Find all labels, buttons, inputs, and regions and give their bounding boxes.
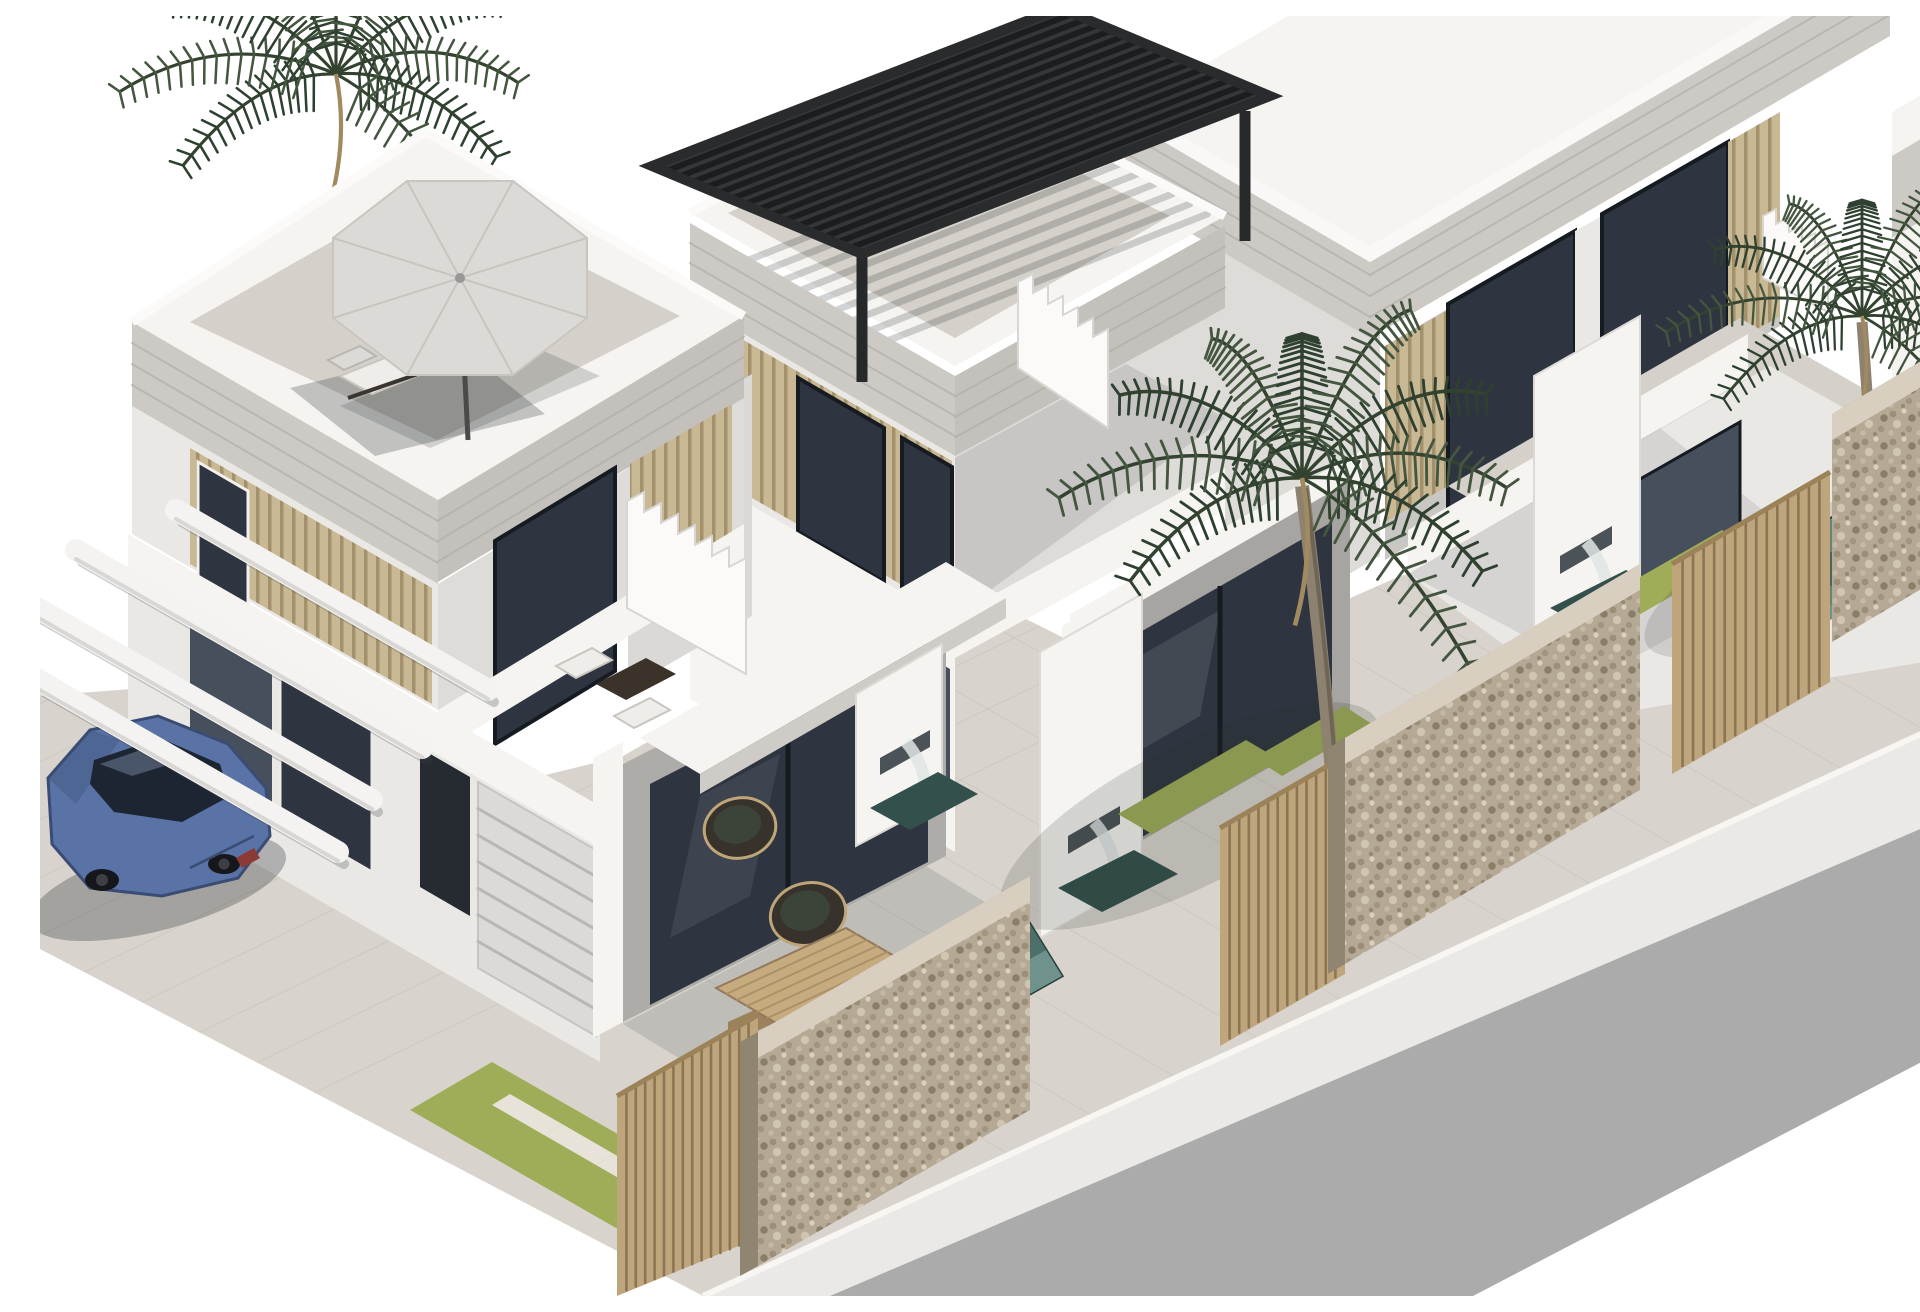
corner-pilaster [593,742,623,1038]
car-rim [219,859,230,870]
render-canvas: 3D exterior render - modern white villas… [40,16,1920,1296]
architectural-render: Architectural visualization, aerial thre… [40,16,1920,1296]
car-rim [96,874,108,886]
entry-door [420,748,470,916]
